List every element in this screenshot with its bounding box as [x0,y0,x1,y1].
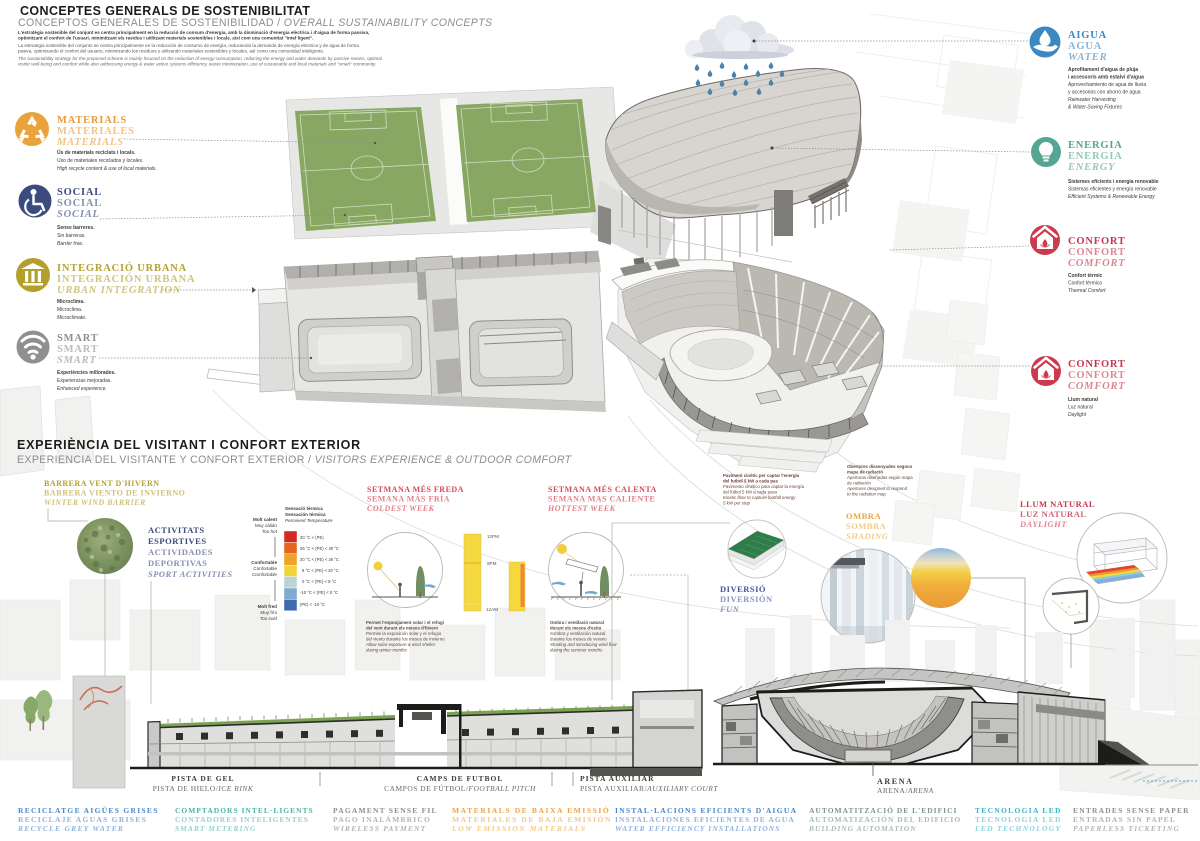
svg-text:Permet l'esponjament solar i e: Permet l'esponjament solar i el refugi [366,620,444,625]
svg-text:Kinetic floor to capture footf: Kinetic floor to capture footfall energy [723,495,796,500]
svg-text:MATERIALS DE BAIXA EMISSIÓ: MATERIALS DE BAIXA EMISSIÓ [452,805,610,815]
svg-text:ARENA/ARENA: ARENA/ARENA [877,786,934,795]
svg-text:Microclima.: Microclima. [57,299,85,305]
svg-text:PISTA AUXILIAR: PISTA AUXILIAR [580,774,655,783]
svg-text:DIVERSIÓN: DIVERSIÓN [720,594,773,604]
svg-text:SMART: SMART [57,333,99,344]
svg-text:del viento durante los meses d: del viento durante los meses de invierno [366,637,445,642]
svg-text:DAYLIGHT: DAYLIGHT [1019,519,1067,529]
svg-text:Sistemas eficientes y energía: Sistemas eficientes y energía renovable [1068,187,1157,193]
svg-text:INSTALACIONES EFICIENTES DE AG: INSTALACIONES EFICIENTES DE AGUA [615,815,795,824]
svg-text:BARRERA VIENTO DE INVIERNO: BARRERA VIENTO DE INVIERNO [44,489,185,498]
svg-text:PAGO INALÁMBRICO: PAGO INALÁMBRICO [333,814,431,824]
svg-text:Molt fred: Molt fred [258,604,278,609]
svg-text:LLUM NATURAL: LLUM NATURAL [1020,499,1095,509]
svg-text:9PM: 9PM [487,561,497,566]
svg-text:Confortable: Confortable [253,566,277,571]
svg-text:Too hot: Too hot [262,529,278,534]
svg-text:ACTIVITATS: ACTIVITATS [148,525,205,535]
svg-text:Enhanced experience.: Enhanced experience. [57,386,107,392]
svg-text:URBAN INTEGRATION: URBAN INTEGRATION [57,285,181,296]
svg-text:12PM: 12PM [487,534,499,539]
svg-text:Too cold: Too cold [260,616,278,621]
svg-text:Comfortable: Comfortable [252,572,277,577]
svg-text:30 °C < (PE): 30 °C < (PE) [300,535,324,540]
svg-text:TECNOLOGIA LED: TECNOLOGIA LED [975,815,1062,824]
svg-text:L'estratègia sostenible del co: L'estratègia sostenible del conjunt es c… [18,30,369,35]
svg-text:Muy cálido: Muy cálido [255,523,277,528]
svg-text:durant els mesos d'estiu: durant els mesos d'estiu [550,626,602,631]
svg-text:AGUA: AGUA [1068,41,1102,52]
svg-text:Ús de materials reciclats i lo: Ús de materials reciclats i locals. [57,149,136,156]
svg-text:SETMANA MÉS CALENTA: SETMANA MÉS CALENTA [548,484,657,494]
svg-text:Daylight: Daylight [1068,412,1087,418]
svg-text:HOTTEST WEEK: HOTTEST WEEK [547,504,616,513]
svg-text:SOCIAL: SOCIAL [57,187,102,198]
svg-text:(PE) < -10 °C: (PE) < -10 °C [300,602,325,607]
svg-text:CONCEPTOS GENERALES DE SOSTENI: CONCEPTOS GENERALES DE SOSTENIBILIDAD / … [18,17,492,29]
svg-text:CONFORT: CONFORT [1068,236,1126,247]
svg-text:OMBRA: OMBRA [846,511,881,521]
svg-text:High recycle content & use of: High recycle content & use of local mate… [57,166,157,172]
svg-text:Muy frío: Muy frío [260,610,277,615]
svg-text:Apertures designed to respond: Apertures designed to respond [846,486,908,491]
svg-text:CAMPOS DE FÚTBOL/FOOTBALL PITC: CAMPOS DE FÚTBOL/FOOTBALL PITCH [384,783,536,793]
svg-text:Sistemes eficients i energia r: Sistemes eficients i energia renovable [1068,179,1159,185]
svg-text:ACTIVIDADES: ACTIVIDADES [148,547,213,557]
svg-text:DEPORTIVAS: DEPORTIVAS [148,558,207,568]
svg-text:The sustainability strategy fo: The sustainability strategy for the prop… [18,56,383,61]
svg-text:RECYCLE GREY WATER: RECYCLE GREY WATER [17,824,124,833]
svg-text:LOW EMISSION MATERIALS: LOW EMISSION MATERIALS [451,824,587,833]
svg-text:Molt calent: Molt calent [253,517,277,522]
svg-text:Perceived Temperature: Perceived Temperature [285,518,333,523]
svg-text:CONCEPTES GENERALS DE SOSTENIB: CONCEPTES GENERALS DE SOSTENIBILITAT [20,4,310,18]
svg-text:MATERIALS: MATERIALS [56,137,124,148]
svg-text:Luz natural: Luz natural [1068,405,1093,411]
svg-text:del futbol 5 kW a cada pas: del futbol 5 kW a cada pas [723,479,778,484]
svg-text:Ombra i ventilació natural: Ombra i ventilació natural [550,620,604,625]
svg-text:MATERIALES: MATERIALES [57,126,135,137]
svg-text:8 °C < (PE) < 20 °C: 8 °C < (PE) < 20 °C [302,568,339,573]
svg-text:Sensació tèrmica: Sensació tèrmica [285,506,323,511]
svg-text:SMART: SMART [57,344,99,355]
svg-text:SOMBRA: SOMBRA [846,521,887,531]
svg-text:pasiva, optimizando el confort: pasiva, optimizando el confort del usuar… [18,49,324,54]
svg-text:Microclimate.: Microclimate. [57,315,86,321]
svg-text:i accessoris amb estalvi d'aig: i accessoris amb estalvi d'aigua [1068,75,1144,81]
svg-text:PISTA AUXILIAR/AUXILIARY COURT: PISTA AUXILIAR/AUXILIARY COURT [580,784,718,793]
svg-text:COMPTADORS INTEL·LIGENTS: COMPTADORS INTEL·LIGENTS [175,806,314,815]
svg-text:INTEGRACIÓN URBANA: INTEGRACIÓN URBANA [57,273,195,285]
svg-text:EXPERIÈNCIA DEL VISITANT I CON: EXPERIÈNCIA DEL VISITANT I CONFORT EXTER… [17,437,361,452]
svg-text:ENERGIA: ENERGIA [1068,151,1123,162]
svg-text:during the summer months: during the summer months [550,648,603,653]
svg-text:de radiación: de radiación [847,481,871,486]
svg-text:COMFORT: COMFORT [1068,258,1126,269]
svg-text:INSTAL·LACIONS EFICIENTS D'A: INSTAL·LACIONS EFICIENTS D'AIGUA [615,806,797,815]
svg-text:Obertures dissenyades segons: Obertures dissenyades segons [847,464,913,469]
svg-text:SMART: SMART [57,355,97,366]
svg-text:del fútbol 5 kW a cada paso: del fútbol 5 kW a cada paso [723,490,778,495]
svg-text:CONTADORES INTELIGENTES: CONTADORES INTELIGENTES [175,815,309,824]
svg-text:RECICLATGE AIGÜES GRISES: RECICLATGE AIGÜES GRISES [18,806,159,815]
svg-text:ARENA: ARENA [877,777,913,786]
svg-text:AIGUA: AIGUA [1068,30,1107,41]
svg-text:CONFORT: CONFORT [1068,370,1126,381]
svg-text:PAGAMENT SENSE FIL: PAGAMENT SENSE FIL [333,806,438,815]
svg-text:WATER: WATER [1068,52,1107,63]
svg-text:SEMANA MÁS FRÍA: SEMANA MÁS FRÍA [367,494,450,504]
svg-text:Uso de materiales reciclados y: Uso de materiales reciclados y locales. [57,158,143,164]
svg-text:RECICLAJE AGUAS GRISES: RECICLAJE AGUAS GRISES [18,815,147,824]
svg-text:AUTOMATIZACIÓN DEL EDIFICIO: AUTOMATIZACIÓN DEL EDIFICIO [809,814,961,824]
svg-text:& Water-Saving Fixtures: & Water-Saving Fixtures [1068,105,1123,111]
svg-text:LUZ NATURAL: LUZ NATURAL [1020,509,1087,519]
svg-text:SOCIAL: SOCIAL [57,198,102,209]
svg-text:Aprovechamiento de agua de llu: Aprovechamiento de agua de lluvia [1068,82,1146,88]
svg-text:Allow solar exposure & wind sh: Allow solar exposure & wind shelter [365,642,436,647]
svg-text:del vent durant els mesos d'hi: del vent durant els mesos d'hivern [366,626,438,631]
svg-text:Sense barreres.: Sense barreres. [57,225,95,231]
svg-text:Sombra y ventilación natural: Sombra y ventilación natural [550,631,605,636]
svg-text:Confort térmico: Confort térmico [1068,281,1102,287]
svg-text:Pavimento cinético para captar: Pavimento cinético para captar la energí… [723,484,805,489]
svg-text:DIVERSIÓ: DIVERSIÓ [720,584,766,594]
svg-text:26 °C < (PE) < 30 °C: 26 °C < (PE) < 30 °C [300,546,339,551]
svg-text:WATER EFFICIENCY INSTALLATIONS: WATER EFFICIENCY INSTALLATIONS [615,824,781,833]
svg-text:SPORT ACTIVITIES: SPORT ACTIVITIES [148,569,232,579]
svg-text:ESPORTIVES: ESPORTIVES [148,536,207,546]
svg-text:SHADING: SHADING [846,531,889,541]
svg-text:Permite la exposición solar y: Permite la exposición solar y el refugio [366,631,442,636]
svg-text:ENERGY: ENERGY [1067,162,1116,173]
svg-text:MATERIALES DE BAJA EMISIÓN: MATERIALES DE BAJA EMISIÓN [452,814,612,824]
svg-text:SOCIAL: SOCIAL [57,209,100,220]
svg-text:INTEGRACIÓ URBANA: INTEGRACIÓ URBANA [57,262,187,274]
svg-text:WINTER WIND BARRIER: WINTER WIND BARRIER [44,498,146,507]
svg-text:COMFORT: COMFORT [1068,381,1126,392]
svg-text:ENERGIA: ENERGIA [1068,140,1123,151]
svg-text:AUTOMATITZACIÓ DE L'EDIFICI: AUTOMATITZACIÓ DE L'EDIFICI [809,805,957,815]
svg-text:WIRELESS PAYMENT: WIRELESS PAYMENT [333,824,426,833]
svg-text:CONFORT: CONFORT [1068,359,1126,370]
svg-text:visitor well-being and comfort: visitor well-being and comfort while als… [18,62,376,67]
svg-text:PISTA DE HIELO/ICE RINK: PISTA DE HIELO/ICE RINK [153,784,254,793]
svg-text:20 °C < (PE) < 26 °C: 20 °C < (PE) < 26 °C [300,557,339,562]
svg-text:durante los meses de verano: durante los meses de verano [550,637,607,642]
svg-text:SEMANA MAS CALIENTE: SEMANA MAS CALIENTE [548,495,655,504]
svg-text:Thermal Comfort: Thermal Comfort [1068,288,1106,294]
svg-text:to the radiation map: to the radiation map [847,492,886,497]
svg-text:Rainwater Harvesting: Rainwater Harvesting [1068,97,1116,103]
svg-text:Barrier free.: Barrier free. [57,241,83,247]
svg-text:0 °C < (PE) < 8 °C: 0 °C < (PE) < 8 °C [302,579,336,584]
svg-text:Confortable: Confortable [251,560,277,565]
svg-text:y accesorios con ahorro de agu: y accesorios con ahorro de agua [1068,90,1141,96]
svg-text:ENTRADAS SIN PAPEL: ENTRADAS SIN PAPEL [1073,815,1176,824]
svg-text:La estrategia sostenible del c: La estrategia sostenible del conjunto se… [18,43,359,48]
svg-text:EXPERIENCIA DEL VISITANTE Y CO: EXPERIENCIA DEL VISITANTE Y CONFORT EXTE… [17,454,573,466]
svg-text:BARRERA VENT D'HIVERN: BARRERA VENT D'HIVERN [44,479,160,488]
svg-text:BUILDING AUTOMATION: BUILDING AUTOMATION [808,824,917,833]
svg-text:optimitzant el confort de l'us: optimitzant el confort de l'usuari, mini… [18,36,313,41]
svg-text:MATERIALS: MATERIALS [57,115,127,126]
svg-text:Llum natural: Llum natural [1068,397,1099,403]
svg-text:Confort tèrmic: Confort tèrmic [1068,273,1103,279]
svg-text:12AM: 12AM [486,607,498,612]
svg-text:5 kW per step: 5 kW per step [723,501,751,506]
svg-text:CAMPS DE FUTBOL: CAMPS DE FUTBOL [417,774,504,783]
svg-text:CONFORT: CONFORT [1068,247,1126,258]
svg-text:PAPERLESS TICKETING: PAPERLESS TICKETING [1073,824,1180,833]
svg-text:Sensación térmica: Sensación térmica [285,512,326,517]
svg-text:SMART METERING: SMART METERING [175,824,256,833]
svg-text:Aprofitament d'aigua de pluja: Aprofitament d'aigua de pluja [1068,67,1138,73]
svg-text:ENTRADES SENSE PAPER: ENTRADES SENSE PAPER [1073,806,1190,815]
svg-text:COLDEST WEEK: COLDEST WEEK [367,504,435,513]
svg-text:during winter months: during winter months [366,648,408,653]
svg-text:Paviment cinètic per captar l': Paviment cinètic per captar l'energia [723,473,800,478]
svg-text:Microclima.: Microclima. [57,307,82,313]
svg-text:PISTA DE GEL: PISTA DE GEL [171,774,234,783]
svg-text:mapa de radiació: mapa de radiació [847,470,883,475]
svg-text:Shading and introducing wind f: Shading and introducing wind flow [550,642,617,647]
svg-text:Efficient Systems & Renewable: Efficient Systems & Renewable Energy [1068,194,1155,200]
svg-text:-10 °C < (PE) < 0 °C: -10 °C < (PE) < 0 °C [300,590,338,595]
svg-text:FUN: FUN [719,604,740,614]
svg-text:Experiencias mejoradas.: Experiencias mejoradas. [57,378,112,384]
svg-text:SETMANA MÉS FREDA: SETMANA MÉS FREDA [367,484,464,494]
svg-text:Aperturas diseñadas según mapa: Aperturas diseñadas según mapa [847,475,913,480]
svg-text:Sin barreras.: Sin barreras. [57,233,86,239]
svg-text:TECNOLOGIA LED: TECNOLOGIA LED [975,806,1062,815]
svg-text:Experiències millorades.: Experiències millorades. [57,370,116,376]
svg-text:LED TECHNOLOGY: LED TECHNOLOGY [974,824,1061,833]
